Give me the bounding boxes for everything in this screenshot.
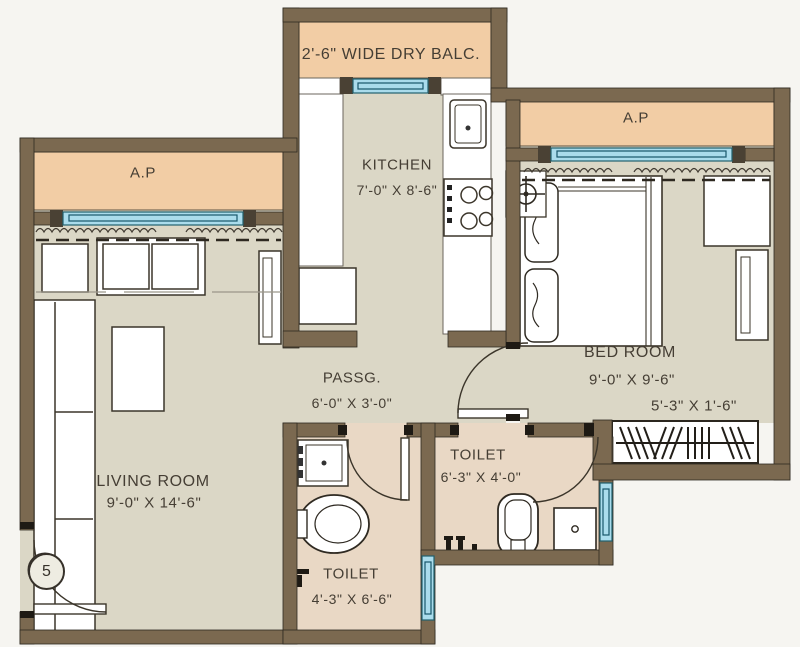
ap-left-label: A.P: [130, 166, 156, 181]
dry-balcony-label: 2'-6" WIDE DRY BALC.: [302, 47, 480, 63]
wc-icon: [299, 495, 369, 553]
ap-right-label: A.P: [623, 111, 649, 126]
floor-plan-drawing: [0, 0, 800, 647]
armchair-icon: [42, 244, 88, 292]
unit-number: 5: [28, 553, 65, 590]
desk-icon: [704, 176, 770, 246]
toilet-left-dims: 4'-3" X 6'-6": [312, 592, 393, 606]
toilet-right-label: TOILET: [450, 448, 506, 463]
toilet-right-window: [600, 483, 612, 541]
toilet-right-dims: 6'-3" X 4'-0": [441, 470, 522, 484]
passage-label: PASSG.: [323, 371, 381, 386]
toilet-left-window: [422, 556, 434, 620]
living-room-dims: 9'-0" X 14'-6": [107, 496, 202, 511]
floor-plan: 2'-6" WIDE DRY BALC. A.P A.P KITCHEN 7'-…: [0, 0, 800, 647]
kitchen-window: [353, 79, 428, 93]
kitchen-cabinet: [299, 268, 356, 324]
wardrobe-icon: [612, 421, 758, 463]
entrance-door-leaf: [34, 604, 106, 614]
kitchen-label: KITCHEN: [362, 158, 432, 173]
washbasin-icon: [554, 508, 596, 550]
wc-icon: [498, 494, 538, 556]
wardrobe-dims: 5'-3" X 1'-6": [651, 399, 737, 414]
kitchen-dims: 7'-0" X 8'-6": [357, 183, 438, 197]
bedroom-window: [551, 148, 732, 161]
bedroom-dims: 9'-0" X 9'-6": [589, 373, 675, 388]
tap-icon: [444, 536, 453, 540]
passage-dims: 6'-0" X 3'-0": [312, 396, 393, 410]
living-window: [63, 212, 243, 225]
toilet-left-label: TOILET: [323, 567, 379, 582]
kitchen-counter-left: [299, 94, 343, 266]
bedroom-label: BED ROOM: [584, 345, 676, 361]
toilet-left-door-leaf: [401, 438, 409, 500]
pillow-icon: [525, 269, 558, 342]
coffee-table-icon: [112, 327, 164, 411]
living-room-label: LIVING ROOM: [96, 474, 209, 490]
